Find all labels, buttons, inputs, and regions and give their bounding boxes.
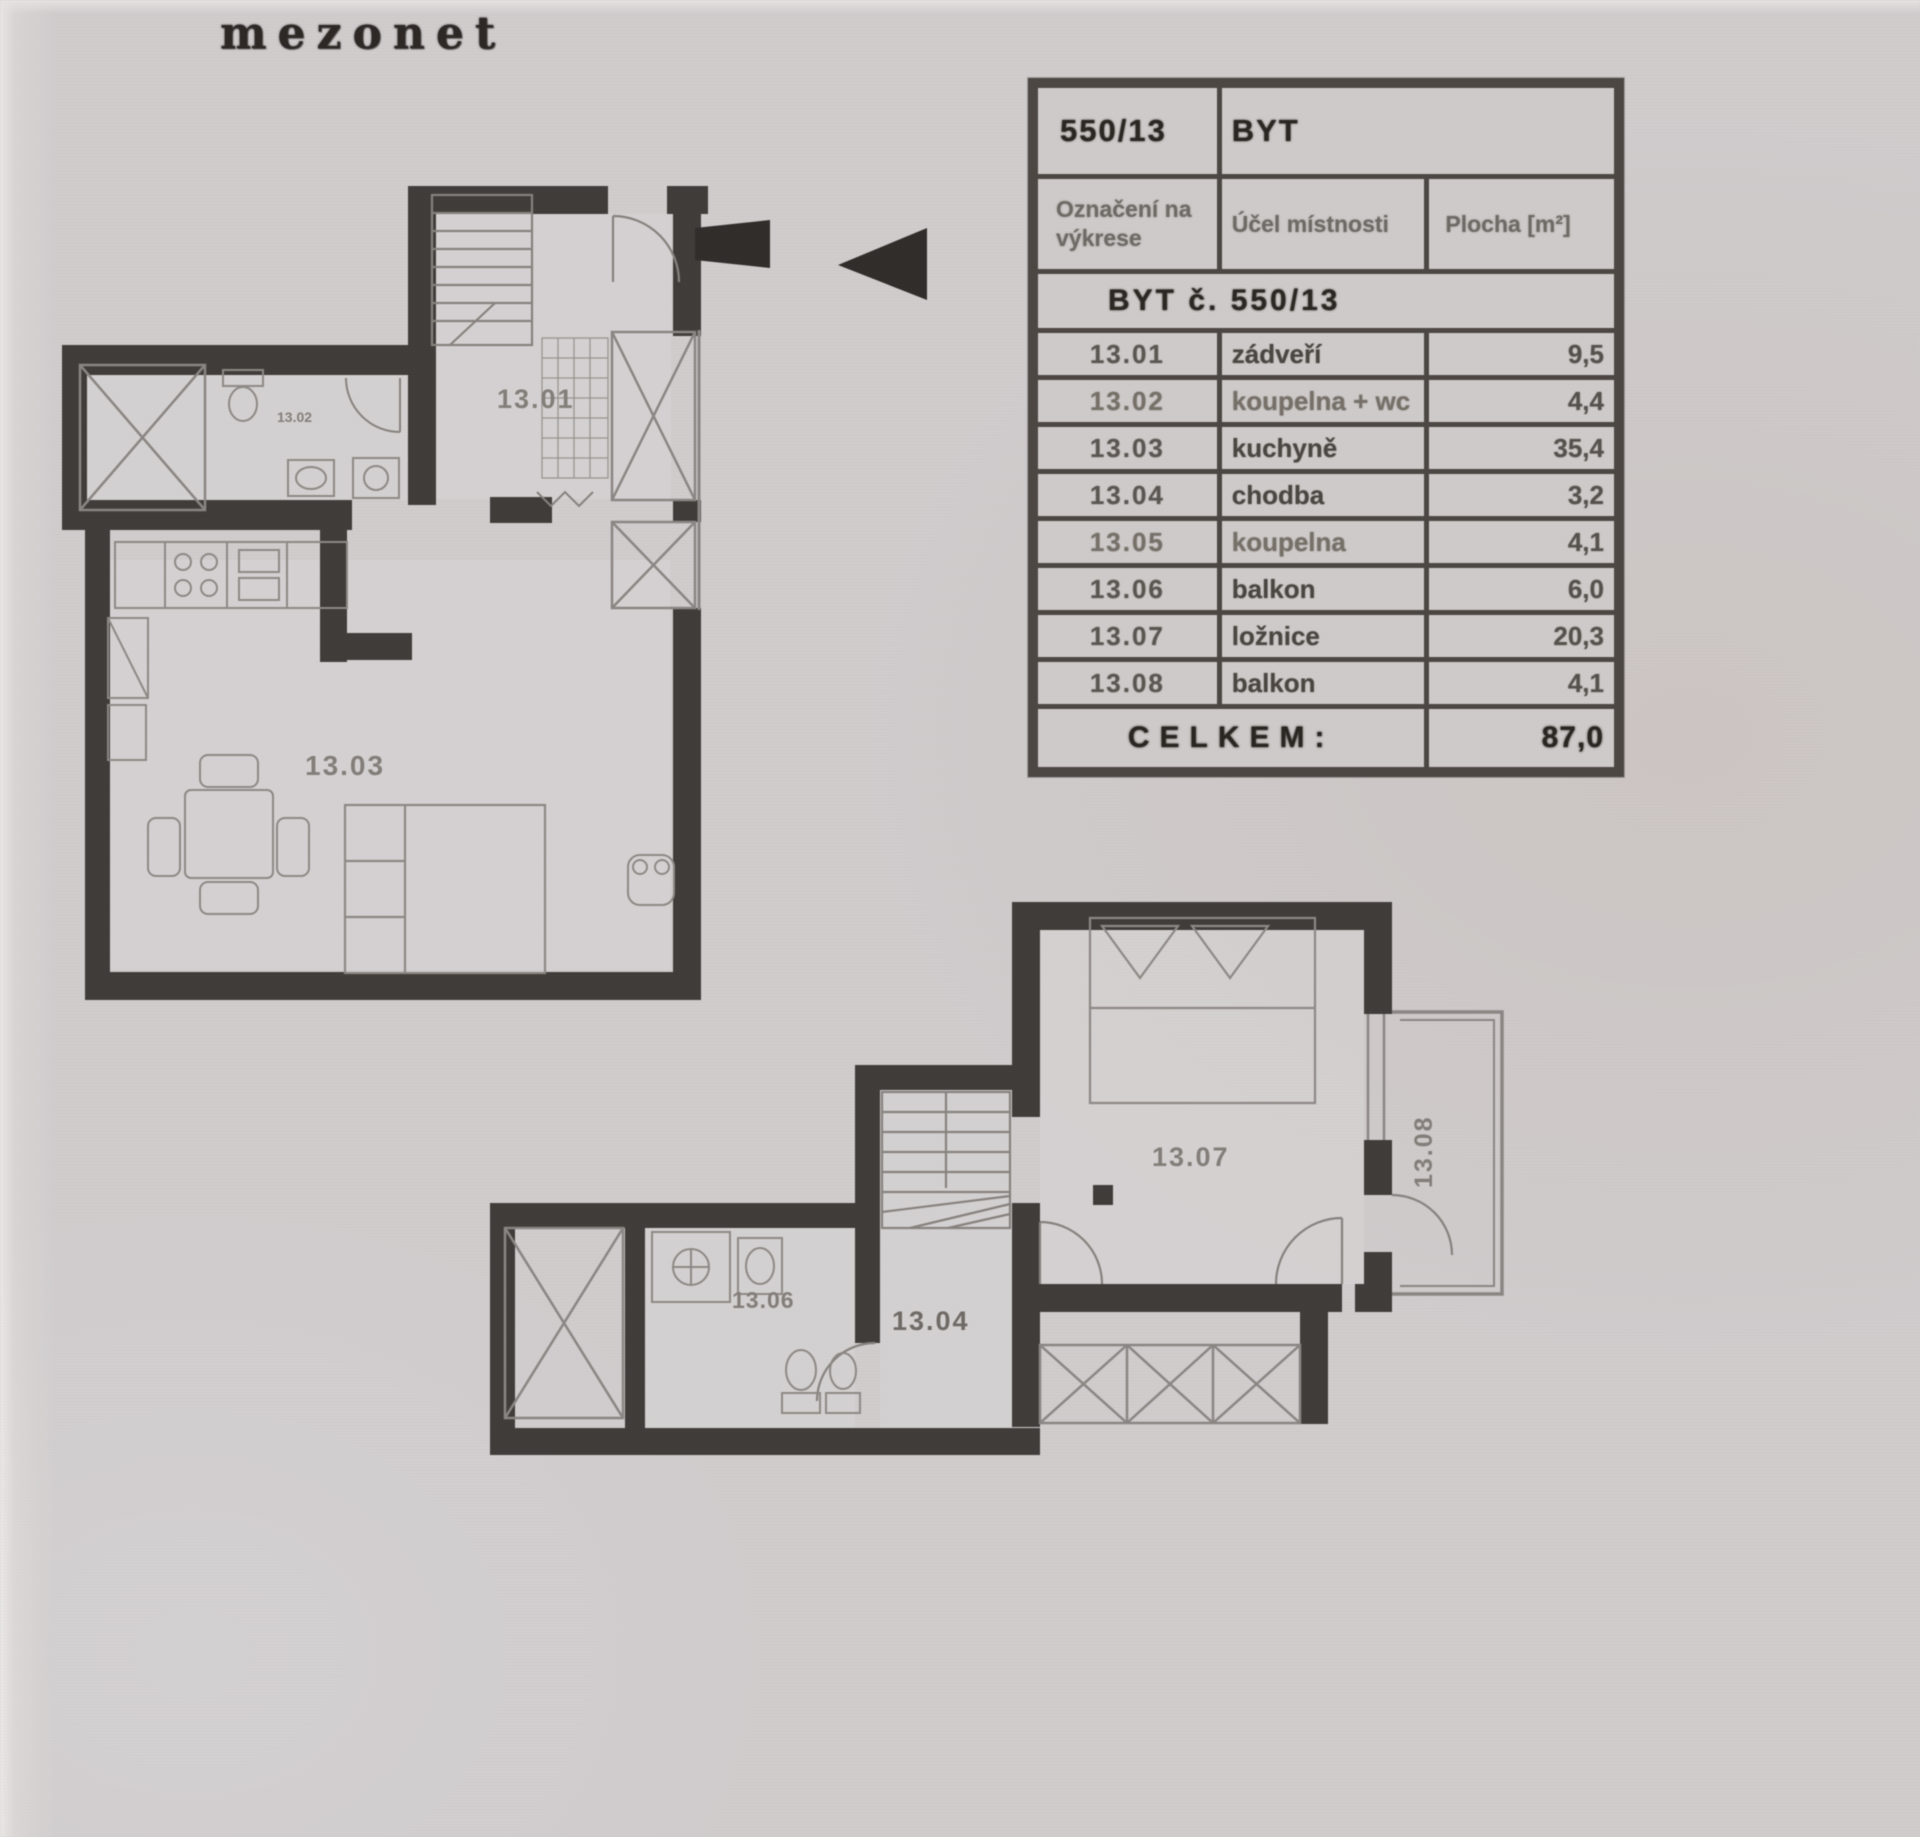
room-code-cell: 13.03 (1038, 427, 1217, 469)
room-name-cell: koupelna (1222, 521, 1425, 563)
col-header-purpose: Účel místnosti (1222, 179, 1425, 269)
total-area-cell: 87,0 (1429, 709, 1614, 767)
room-area-cell: 20,3 (1429, 615, 1614, 657)
room-area-cell: 4,1 (1429, 662, 1614, 704)
room-area-cell: 3,2 (1429, 474, 1614, 516)
room-code-cell: 13.07 (1038, 615, 1217, 657)
window-lines (1368, 1014, 1384, 1140)
room-interiors (645, 930, 1364, 1428)
table-total-row: CELKEM: 87,0 (1038, 709, 1614, 767)
table-header-row: Označení na výkrese Účel místnosti Ploch… (1038, 179, 1614, 269)
table-row-unit: 550/13 BYT (1038, 88, 1614, 174)
room-area-cell: 9,5 (1429, 333, 1614, 375)
room-area-cell: 4,4 (1429, 380, 1614, 422)
room-code-cell: 13.06 (1038, 568, 1217, 610)
unit-number-cell: 550/13 (1038, 88, 1217, 174)
room-area-cell: 4,1 (1429, 521, 1614, 563)
balcony-rail (1392, 1012, 1502, 1294)
table-row: 13.07 ložnice 20,3 (1038, 615, 1614, 657)
table-row: 13.04 chodba 3,2 (1038, 474, 1614, 516)
table-row: 13.06 balkon 6,0 (1038, 568, 1614, 610)
hatched-box-icon (505, 1228, 623, 1418)
room-area-cell: 35,4 (1429, 427, 1614, 469)
room-interiors (87, 214, 671, 970)
room-name-cell: chodba (1222, 474, 1425, 516)
table-row: 13.05 koupelna 4,1 (1038, 521, 1614, 563)
table-row: 13.01 zádveří 9,5 (1038, 333, 1614, 375)
room-area-cell: 6,0 (1429, 568, 1614, 610)
room-code-cell: 13.08 (1038, 662, 1217, 704)
room-code-cell: 13.05 (1038, 521, 1217, 563)
table-section-row: BYT č. 550/13 (1038, 274, 1614, 328)
col-header-code: Označení na výkrese (1038, 179, 1217, 269)
table-row: 13.08 balkon 4,1 (1038, 662, 1614, 704)
room-name-cell: balkon (1222, 662, 1425, 704)
table-row: 13.03 kuchyně 35,4 (1038, 427, 1614, 469)
room-label: 13.03 (305, 750, 385, 781)
room-name-cell: kuchyně (1222, 427, 1425, 469)
room-label: 13.07 (1152, 1142, 1230, 1172)
room-name-cell: koupelna + wc (1222, 380, 1425, 422)
room-label: 13.01 (497, 384, 575, 414)
room-code-cell: 13.04 (1038, 474, 1217, 516)
room-code-cell: 13.02 (1038, 380, 1217, 422)
unit-type-cell: BYT (1222, 88, 1614, 174)
marker-square (1093, 1185, 1113, 1205)
page-title: mezonet (220, 7, 506, 59)
room-code-cell: 13.01 (1038, 333, 1217, 375)
room-name-cell: ložnice (1222, 615, 1425, 657)
col-header-area: Plocha [m²] (1429, 179, 1614, 269)
scanned-floorplan-sheet: mezonet 550/13 BYT Označení na výkrese Ú… (0, 0, 1920, 1837)
room-area-table: 550/13 BYT Označení na výkrese Účel míst… (1028, 78, 1624, 777)
table-row: 13.02 koupelna + wc 4,4 (1038, 380, 1614, 422)
room-label: 13.08 (1410, 1115, 1438, 1188)
room-label: 13.02 (277, 409, 312, 425)
room-name-cell: zádveří (1222, 333, 1425, 375)
floor-plan-upper: 13.04 13.06 13.07 13.08 (480, 888, 1520, 1538)
balcony-hatched-rail (1040, 1345, 1300, 1423)
entrance-arrow-icon (695, 220, 927, 300)
total-label-cell: CELKEM: (1038, 709, 1424, 767)
room-name-cell: balkon (1222, 568, 1425, 610)
section-header-cell: BYT č. 550/13 (1038, 274, 1614, 328)
room-label: 13.06 (732, 1287, 795, 1313)
room-label: 13.04 (892, 1306, 970, 1336)
